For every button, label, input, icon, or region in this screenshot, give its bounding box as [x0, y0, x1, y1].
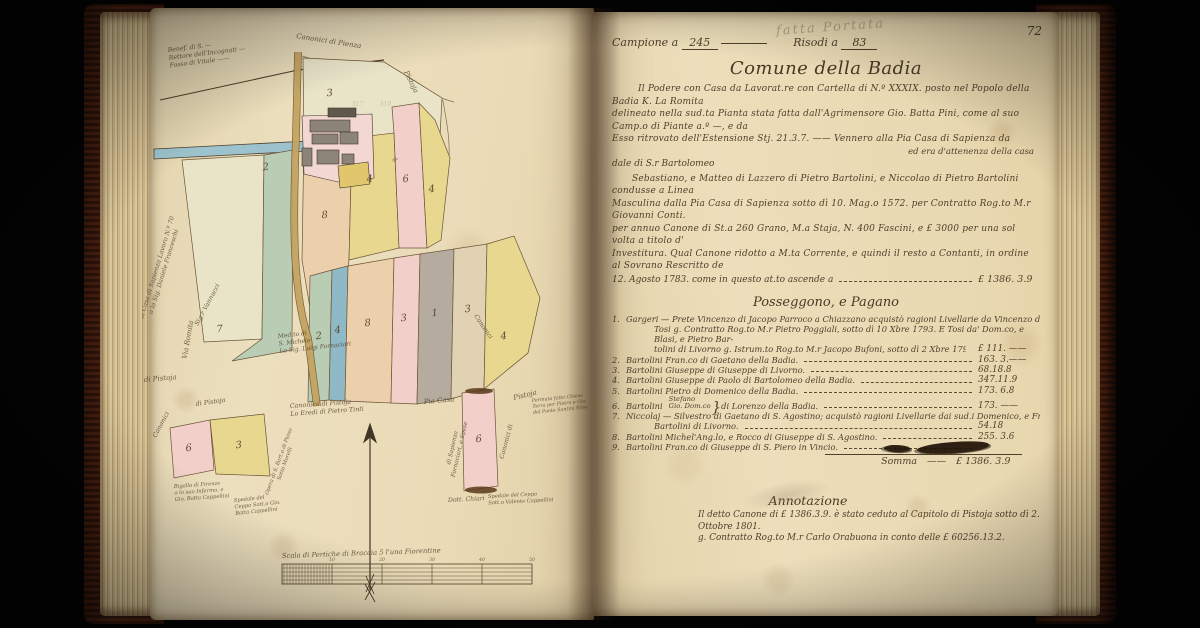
- map-label: Spedale delCeppo Sott.o Gio.Batta Cappel…: [233, 493, 282, 517]
- pencil-mark: 318: [380, 100, 392, 108]
- annotation-line: Il detto Canone di £ 1386.3.9. è stato c…: [698, 510, 1040, 533]
- contract-last-line: 12. Agosto 1783. come in questo at.to as…: [612, 275, 833, 285]
- scale-tick-label: 10: [329, 557, 335, 563]
- row-name: Bartolini: [626, 401, 663, 411]
- map-label: Canonici: [151, 410, 171, 439]
- brace-name: Gio. Dom.co: [669, 403, 711, 411]
- row-name: Niccolaj —: [626, 411, 671, 421]
- row-amount: £ 111. ——: [978, 344, 1040, 354]
- map-label: Scala di Pertiche di Braccia 5 l'una Fio…: [282, 546, 441, 560]
- row-amount: 255. 3.6: [978, 432, 1040, 442]
- map-label: Benef. di S. —Rettore dell'Incognati —Fo…: [166, 38, 246, 70]
- annotation-paragraph: Il detto Canone di £ 1386.3.9. è stato c…: [698, 510, 1040, 545]
- dotted-leader: [804, 361, 972, 362]
- farm-buildings: [302, 108, 374, 188]
- page-title: Comune della Badia: [612, 58, 1040, 79]
- manuscript-line: Il Podere con Casa da Lavorat.re con Car…: [612, 83, 1040, 108]
- left-page: 72384642483134636Benef. di S. —Rettore d…: [150, 8, 594, 620]
- row-text: Tosi g. Contratto Rog.to M.r Pietro Pogg…: [612, 324, 1040, 345]
- row-number: 2.: [612, 355, 626, 365]
- annotation-line: g. Contratto Rog.to M.r Carlo Orabuona i…: [698, 533, 1040, 545]
- total-amount: £ 1386. 3.9: [956, 456, 1018, 467]
- row-amount: 347.11.9: [978, 375, 1040, 385]
- contract-amount: £ 1386. 3.9: [978, 274, 1040, 285]
- photo-stage: 72384642483134636Benef. di S. —Rettore d…: [0, 0, 1200, 628]
- campione-value: 245: [682, 36, 718, 50]
- map-label: Via Romita: [181, 320, 196, 360]
- ledger-row: 2.Bartolini Fran.co di Gaetano della Bad…: [612, 355, 1040, 365]
- manuscript-line: Esso ritrovato dell'Estensione Stj. 21.3…: [612, 133, 1040, 146]
- pencil-mark: 317: [352, 100, 364, 108]
- map-label: Dott. Chiari: [447, 495, 485, 504]
- parcel-number: 3: [400, 313, 407, 325]
- dotted-leader: [839, 281, 972, 282]
- parcel-number: 4: [499, 331, 507, 343]
- parcel-number: 4: [365, 174, 373, 186]
- dotted-leader: [745, 428, 972, 429]
- row-number: 4.: [612, 375, 626, 385]
- map-label: di Pistoja: [143, 373, 176, 384]
- map-label: Spedale del CeppoSott.o Valente Cappelli…: [488, 491, 554, 507]
- ledger-row: 6.BartoliniStefanoGio. Dom.co}di Lorenzo…: [612, 396, 1040, 411]
- dotted-leader: [883, 438, 972, 439]
- ledger-row-line: Bartolini di Livorno.54.18: [612, 421, 1040, 431]
- ledger-row: 4.Bartolini Giuseppe di Paolo di Bartolo…: [612, 375, 1040, 385]
- estate-map: 72384642483134636Benef. di S. —Rettore d…: [142, 8, 612, 618]
- scale-bar: [282, 564, 532, 584]
- ledger-row: 7.Niccolaj — Silvestro di Gaetano di S. …: [612, 411, 1040, 432]
- parcel: [391, 254, 420, 404]
- ledger-row-line: 6.BartoliniStefanoGio. Dom.co}di Lorenzo…: [612, 396, 1040, 411]
- row-number: 8.: [612, 432, 626, 442]
- campione-field: Campione a 245: [612, 36, 767, 50]
- row-amount: 173. 6.8: [978, 386, 1040, 396]
- total-rule: Somma —— £ 1386. 3.9: [825, 454, 1022, 467]
- parcel-number: 3: [326, 88, 333, 100]
- right-page: Campione a 245 Risodi a 83 fatta Portata…: [592, 12, 1058, 616]
- map-label: Canonici di: [499, 424, 515, 460]
- dotted-leader: [824, 407, 972, 408]
- contract-amount-line: 12. Agosto 1783. come in questo at.to as…: [612, 274, 1040, 285]
- manuscript-line: Sebastiano, e Matteo di Lazzero di Pietr…: [612, 173, 1040, 198]
- scale-tick-label: 20: [378, 557, 385, 563]
- map-label: di Pistoja: [195, 396, 226, 408]
- header-rule: [721, 43, 767, 44]
- row-name: Bartolini Fran.co di Gaetano della Badia…: [626, 355, 798, 365]
- manuscript-line: Masculina dalla Pia Casa di Sapienza sot…: [612, 198, 1040, 223]
- map-label: Opera di S. Bart.o di PianoSotto Morelli: [264, 428, 300, 498]
- ledger-row: 1.Gargeri — Prete Vincenzo di Jacopo Par…: [612, 314, 1040, 355]
- row-name: Gargeri —: [626, 314, 669, 324]
- row-name: Bartolini Fran.co di Giuseppe di S. Pier…: [626, 442, 838, 452]
- ledger-row: 9.Bartolini Fran.co di Giuseppe di S. Pi…: [612, 442, 1040, 452]
- parcel-number: 3: [235, 440, 242, 452]
- manuscript-line: delineato nella sud.ta Pianta stata fatt…: [612, 108, 1040, 133]
- total-dashes: ——: [927, 456, 946, 467]
- parcel: [345, 258, 394, 403]
- ledger-header: Campione a 245 Risodi a 83: [612, 36, 1040, 50]
- dotted-leader: [811, 371, 972, 372]
- row-number: 6.: [612, 401, 626, 411]
- provenance-line: dale di S.r Bartolomeo: [612, 159, 1040, 169]
- parcel-number: 3: [464, 304, 471, 316]
- ledger-row-line: tolini di Livorno g. Istrum.to Rog.to M.…: [612, 344, 1040, 354]
- parcel: [182, 155, 264, 342]
- parcel: [170, 420, 214, 478]
- row-name: Bartolini Pietro di Domenico della Badia…: [626, 386, 798, 396]
- row-name: Bartolini Michel'Ang.lo, e Rocco di Gius…: [626, 432, 877, 442]
- manuscript-line: Investitura. Qual Canone ridotto a M.ta …: [612, 248, 1040, 273]
- intro-paragraph: Il Podere con Casa da Lavorat.re con Car…: [612, 83, 1040, 146]
- row-amount: 173. ——: [978, 401, 1040, 411]
- parcel: [484, 236, 540, 389]
- ledger-row-line: 1.Gargeri — Prete Vincenzo di Jacopo Par…: [612, 314, 1040, 324]
- ledger-row-line: 2.Bartolini Fran.co di Gaetano della Bad…: [612, 355, 1040, 365]
- row-amount: 54.18: [978, 421, 1040, 431]
- page-edges-right: [1054, 12, 1100, 616]
- parcel-number: 4: [333, 325, 341, 337]
- row-text: di Lorenzo della Badia.: [721, 401, 818, 411]
- ledger-row: 3.Bartolini Giuseppe di Giuseppe di Livo…: [612, 365, 1040, 375]
- side-note: ed era d'attenenza della casa: [612, 147, 1034, 157]
- parcel-number: 8: [364, 318, 371, 330]
- parcel-number: 8: [321, 210, 328, 222]
- row-amount: 163. 3.——: [978, 355, 1040, 365]
- row-text: Bartolini di Livorno.: [654, 421, 739, 431]
- page-number: 72: [1027, 24, 1042, 38]
- map-label: Bigallo di Firenzeo lo suo Infermo, eGio…: [173, 480, 230, 503]
- parcel-number: 2: [261, 162, 269, 174]
- row-number: 5.: [612, 386, 626, 396]
- row-number: 1.: [612, 314, 626, 324]
- ledger-row-line: 7.Niccolaj — Silvestro di Gaetano di S. …: [612, 411, 1040, 421]
- row-amount: 68.18.8: [978, 365, 1040, 375]
- total-line: Somma —— £ 1386. 3.9: [612, 454, 1022, 467]
- row-number: 3.: [612, 365, 626, 375]
- parcel-number: 4: [427, 184, 435, 196]
- parcel: [417, 249, 454, 404]
- contract-paragraph: Sebastiano, e Matteo di Lazzero di Pietr…: [612, 173, 1040, 273]
- map-label: Pia Casa di Sapienza Lavoro N.º 70o lo S…: [142, 216, 184, 327]
- row-text: Silvestro di Gaetano di S. Agostino; acq…: [671, 411, 1040, 421]
- map-label: Canonici di Pienza: [296, 32, 362, 50]
- north-arrow: [364, 424, 376, 602]
- scale-bar-frame: [282, 564, 532, 584]
- scale-tick-label: 40: [478, 557, 485, 563]
- scale-tick-label: 30: [429, 557, 435, 563]
- parcel-number: 2: [314, 331, 322, 343]
- ledger-row-line: 4.Bartolini Giuseppe di Paolo di Bartolo…: [612, 375, 1040, 385]
- dotted-leader: [861, 382, 972, 383]
- map-label: Permuta fatta ChiesaTerra per Pietro e G…: [531, 392, 589, 416]
- risodi-field: Risodi a 83: [793, 36, 877, 50]
- row-name: Bartolini Giuseppe di Giuseppe di Livorn…: [626, 365, 805, 375]
- risodi-label: Risodi a: [793, 36, 838, 49]
- ledger-heading: Posseggono, e Pagano: [612, 295, 1040, 310]
- row-text: Prete Vincenzo di Jacopo Parroco a Chiaz…: [669, 314, 1040, 324]
- ledger-row-line: 3.Bartolini Giuseppe di Giuseppe di Livo…: [612, 365, 1040, 375]
- row-name: Bartolini Giuseppe di Paolo di Bartolome…: [626, 375, 855, 385]
- total-label: Somma: [881, 456, 917, 467]
- brace-names: StefanoGio. Dom.co: [669, 396, 711, 411]
- map-label: Pia Casa: [422, 395, 454, 406]
- row-text: tolini di Livorno g. Istrum.to Rog.to M.…: [654, 344, 966, 354]
- manuscript-line: per annuo Canone di St.a 260 Grano, M.a …: [612, 223, 1040, 248]
- campione-label: Campione a: [612, 36, 678, 49]
- parcel-number: 1: [431, 308, 438, 320]
- dotted-leader: [804, 392, 972, 393]
- risodi-value: 83: [841, 36, 877, 50]
- scale-tick-label: 50: [529, 557, 535, 563]
- row-number: 7.: [612, 411, 626, 421]
- row-number: 9.: [612, 442, 626, 452]
- ledger: 1.Gargeri — Prete Vincenzo di Jacopo Par…: [612, 314, 1040, 453]
